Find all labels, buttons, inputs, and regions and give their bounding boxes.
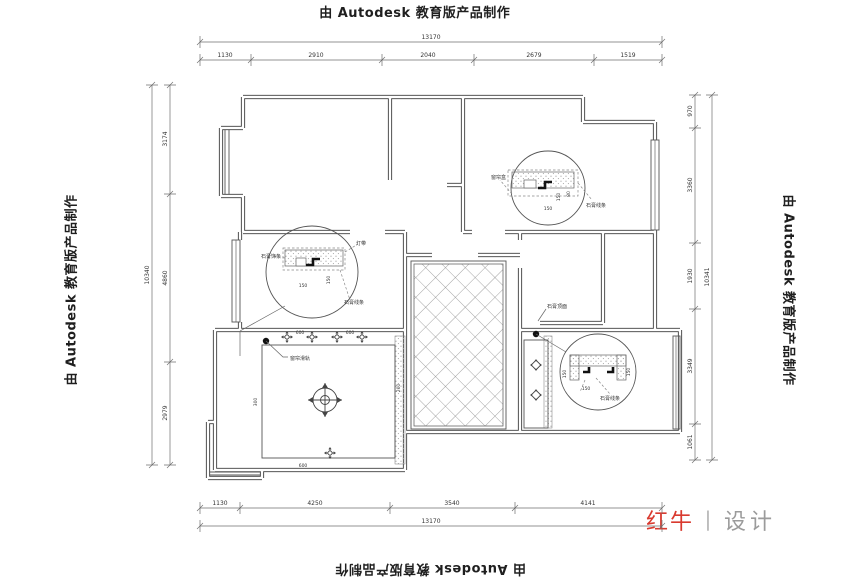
ceiling-surface-callout: 石膏顶面 [538,303,567,321]
dim-text: 10341 [704,267,711,286]
ceiling-fan-symbol [308,383,342,417]
dim-text: 600 [296,330,305,336]
detail-dim: 150 [556,193,562,202]
living-room-ceiling: 600 600 300 200 600 窗帘滑轨 [253,330,402,469]
dim-text: 3174 [162,131,169,146]
detail-label: 石膏线条 [600,395,620,402]
spotlight-icon [281,331,293,343]
dim-text: 4141 [580,500,595,507]
detail-dim: 80 [566,191,572,197]
dim-text: 3540 [444,500,459,507]
dim-text: 4250 [307,500,322,507]
floor-plan-canvas: 600 600 300 200 600 窗帘滑轨 石膏顶面 [0,0,860,580]
lattice-ceiling-panel [411,261,506,429]
dim-text: 2679 [526,52,541,59]
detail-dim: 150 [326,276,332,285]
detail-label: 灯带 [356,240,366,247]
dim-text: 200 [396,384,402,393]
dim-text: 2040 [420,52,435,59]
detail-label: 石膏线条 [586,202,606,209]
dim-text: 3360 [687,177,694,192]
dim-text: 4860 [162,270,169,285]
detail-label: 石膏线条 [344,299,364,306]
dim-text: 1130 [212,500,227,507]
dim-text: 13170 [421,518,440,525]
dim-text: 300 [253,398,259,407]
dimension-chain-top: 13170 1130 2910 2040 2679 1519 [197,34,665,66]
spotlight-icon [331,331,343,343]
detail-dim: 150 [299,283,308,289]
dim-text: 10340 [144,265,151,284]
detail-dim: 150 [562,370,568,379]
dim-text: 13170 [421,34,440,41]
diamond-spotlight-icon [530,389,542,401]
detail-dim: 150 [544,206,553,212]
spotlight-icon [306,331,318,343]
detail-circle-mid-left: 石膏饰条 灯带 石膏线条 150 150 [240,226,366,356]
dim-text: 1519 [620,52,635,59]
spotlight-icon [356,331,368,343]
detail-label: 石膏饰条 [261,253,281,260]
dim-text: 970 [687,105,694,117]
detail-circle-top-right: 150 80 窗帘盒 石膏线条 150 [491,151,606,225]
curtain-track-label: 窗帘滑轨 [290,355,310,362]
ceiling-surface-label: 石膏顶面 [547,303,567,310]
dimension-chain-left: 10340 3174 4860 2979 [144,82,176,468]
detail-label: 窗帘盒 [491,174,506,181]
dim-text: 3349 [687,358,694,373]
spotlight-icon [324,447,336,459]
diamond-spotlight-icon [530,359,542,371]
detail-dim: 150 [626,368,632,377]
dim-text: 1130 [217,52,232,59]
detail-circle-bottom-right: 150 150 150 石膏线条 [560,334,636,410]
dim-text: 1930 [687,268,694,283]
dim-text: 1061 [687,434,694,449]
detail-dim: 150 [582,386,591,392]
dim-text: 600 [346,330,355,336]
drawing-sheet: 由 Autodesk 教育版产品制作 由 Autodesk 教育版产品制作 由 … [0,0,860,580]
dim-text: 2910 [308,52,323,59]
dim-text: 600 [299,463,308,469]
dimension-chain-right: 970 3360 1930 3349 1061 10341 [687,92,718,463]
dim-text: 2979 [162,405,169,420]
dimension-chain-bottom: 1130 4250 3540 4141 13170 [197,500,665,532]
